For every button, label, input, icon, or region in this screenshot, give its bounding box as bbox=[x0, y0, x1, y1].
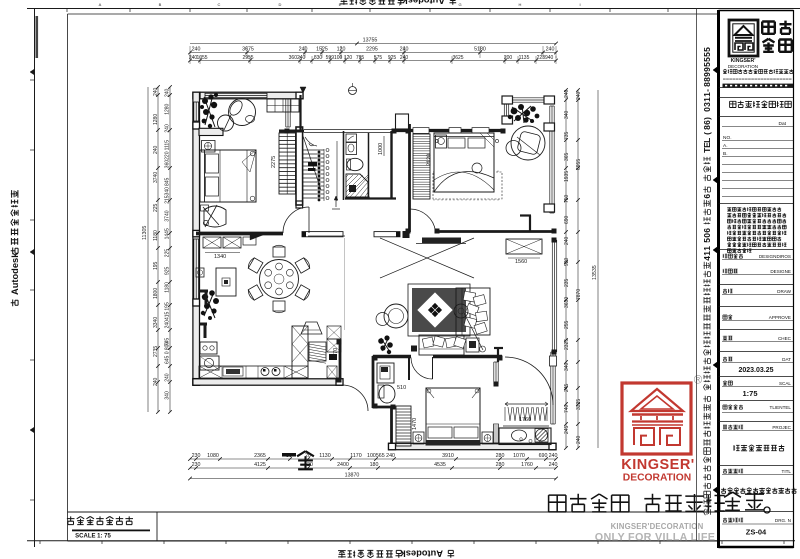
svg-text:CHEC: CHEC bbox=[778, 336, 792, 341]
svg-text:PROJEC: PROJEC bbox=[772, 425, 791, 430]
svg-text:599100: 599100 bbox=[326, 55, 343, 61]
svg-text:230: 230 bbox=[192, 462, 201, 468]
svg-text:4535: 4535 bbox=[434, 462, 446, 468]
svg-text:2325: 2325 bbox=[564, 339, 570, 350]
svg-text:®: ® bbox=[694, 375, 703, 387]
svg-text:240: 240 bbox=[153, 377, 159, 386]
svg-text:740: 740 bbox=[564, 404, 570, 413]
svg-text:2955: 2955 bbox=[242, 55, 253, 61]
svg-text:H: H bbox=[519, 2, 522, 7]
svg-text:240: 240 bbox=[400, 47, 409, 53]
svg-text:KINGSER': KINGSER' bbox=[621, 457, 695, 473]
svg-text:ZS-04: ZS-04 bbox=[746, 528, 767, 537]
svg-text:2295: 2295 bbox=[366, 47, 378, 53]
svg-text:A.: A. bbox=[723, 143, 728, 149]
svg-text:240: 240 bbox=[165, 88, 171, 97]
svg-text:2120: 2120 bbox=[427, 154, 433, 166]
svg-text:1280: 1280 bbox=[165, 103, 171, 114]
svg-text:3740: 3740 bbox=[165, 210, 171, 221]
svg-text:225: 225 bbox=[153, 203, 159, 212]
svg-text:1800: 1800 bbox=[153, 288, 159, 299]
svg-text:1135: 1135 bbox=[519, 55, 530, 61]
svg-text:1080: 1080 bbox=[207, 453, 219, 459]
svg-text:TLIENTEL: TLIENTEL bbox=[770, 405, 792, 410]
svg-text:245: 245 bbox=[564, 425, 570, 434]
svg-text:L: L bbox=[702, 138, 712, 143]
svg-text:1670: 1670 bbox=[333, 348, 339, 360]
svg-text:195: 195 bbox=[165, 302, 171, 311]
svg-text:120: 120 bbox=[337, 47, 346, 53]
svg-text:240: 240 bbox=[153, 145, 159, 154]
svg-text:Autodesk: Autodesk bbox=[400, 549, 443, 559]
svg-text:690: 690 bbox=[539, 453, 548, 459]
svg-text:DECORATION: DECORATION bbox=[728, 64, 758, 69]
svg-text:750: 750 bbox=[564, 194, 570, 203]
svg-text:360220: 360220 bbox=[165, 151, 171, 168]
svg-text:240: 240 bbox=[165, 373, 171, 382]
svg-text:1470: 1470 bbox=[412, 418, 418, 430]
svg-text:3630: 3630 bbox=[564, 297, 570, 308]
svg-text:240: 240 bbox=[576, 91, 582, 100]
svg-text:): ) bbox=[702, 117, 712, 120]
svg-text:1935: 1935 bbox=[564, 171, 570, 182]
svg-text:255: 255 bbox=[564, 320, 570, 329]
svg-text:1340: 1340 bbox=[214, 254, 226, 260]
svg-text:3340: 3340 bbox=[153, 317, 159, 328]
svg-text:5: 5 bbox=[702, 47, 712, 52]
svg-text:235: 235 bbox=[564, 278, 570, 287]
svg-text:DESIGNDIROS: DESIGNDIROS bbox=[759, 254, 791, 259]
svg-text:3625: 3625 bbox=[452, 55, 463, 61]
svg-text:13755: 13755 bbox=[363, 38, 378, 44]
svg-text:240: 240 bbox=[192, 47, 201, 53]
svg-text:340: 340 bbox=[564, 110, 570, 119]
svg-text:240: 240 bbox=[576, 435, 582, 444]
svg-text:-: - bbox=[702, 89, 712, 92]
svg-text:Autodesk: Autodesk bbox=[402, 0, 445, 6]
svg-text:830: 830 bbox=[314, 55, 323, 61]
svg-text:340: 340 bbox=[564, 362, 570, 371]
svg-text:DECORATION: DECORATION bbox=[623, 473, 691, 484]
svg-text:D: D bbox=[279, 2, 282, 7]
svg-text:280: 280 bbox=[496, 462, 505, 468]
svg-text:2023.03.25: 2023.03.25 bbox=[738, 367, 773, 374]
svg-text:SCALE 1: 75: SCALE 1: 75 bbox=[75, 534, 111, 540]
svg-text:180: 180 bbox=[370, 462, 379, 468]
svg-text:11305: 11305 bbox=[142, 226, 148, 240]
svg-text:510: 510 bbox=[397, 385, 406, 391]
svg-text:DRG. N: DRG. N bbox=[775, 518, 791, 523]
svg-text:(: ( bbox=[702, 132, 712, 135]
svg-text:1170: 1170 bbox=[350, 453, 361, 459]
svg-text:215340: 215340 bbox=[165, 187, 171, 204]
svg-text:2365: 2365 bbox=[254, 453, 266, 459]
svg-text:NO.: NO. bbox=[723, 135, 732, 141]
svg-text:245: 245 bbox=[564, 383, 570, 392]
svg-text:E: E bbox=[339, 2, 342, 7]
svg-text:G: G bbox=[458, 2, 461, 7]
svg-text:240: 240 bbox=[546, 47, 555, 53]
svg-text:925: 925 bbox=[388, 55, 397, 61]
svg-text:735: 735 bbox=[564, 131, 570, 140]
svg-text:1760: 1760 bbox=[519, 417, 531, 423]
svg-text:1180: 1180 bbox=[165, 282, 171, 293]
svg-text:1: 1 bbox=[702, 246, 712, 251]
svg-text:1130: 1130 bbox=[319, 453, 330, 459]
svg-text:5180: 5180 bbox=[474, 47, 486, 53]
svg-text:3740: 3740 bbox=[153, 172, 159, 183]
svg-text:DAT: DAT bbox=[782, 357, 791, 362]
svg-text:575: 575 bbox=[374, 55, 383, 61]
svg-text:223940: 223940 bbox=[537, 55, 554, 61]
svg-text:920: 920 bbox=[564, 257, 570, 266]
svg-text:1180: 1180 bbox=[153, 230, 159, 241]
svg-text:3325: 3325 bbox=[576, 399, 582, 410]
svg-text:I: I bbox=[579, 2, 580, 7]
svg-text:240415: 240415 bbox=[165, 311, 171, 328]
svg-text:360240: 360240 bbox=[289, 55, 306, 61]
svg-text:ONLY FOR VILLA LIFE: ONLY FOR VILLA LIFE bbox=[595, 532, 715, 544]
svg-text:365: 365 bbox=[564, 152, 570, 161]
svg-text:6955: 6955 bbox=[576, 159, 582, 170]
svg-text:240: 240 bbox=[564, 236, 570, 245]
svg-text:7870: 7870 bbox=[576, 289, 582, 300]
svg-text:240: 240 bbox=[549, 462, 558, 468]
svg-text:195: 195 bbox=[153, 261, 159, 270]
svg-text:KINGSER'DECORATION: KINGSER'DECORATION bbox=[611, 522, 704, 531]
svg-text:DESIGNE: DESIGNE bbox=[770, 269, 791, 274]
svg-text:1760: 1760 bbox=[521, 462, 533, 468]
svg-text:1525: 1525 bbox=[316, 47, 328, 53]
svg-text:1445: 1445 bbox=[165, 228, 171, 239]
svg-text:240: 240 bbox=[299, 47, 308, 53]
svg-text:240: 240 bbox=[549, 453, 558, 459]
svg-text:B.: B. bbox=[723, 151, 728, 157]
svg-text:2735: 2735 bbox=[153, 346, 159, 357]
svg-text:240: 240 bbox=[564, 89, 570, 98]
svg-text:C: C bbox=[218, 2, 221, 7]
svg-text:A: A bbox=[99, 2, 102, 7]
svg-text:925: 925 bbox=[165, 266, 171, 275]
svg-text:240: 240 bbox=[165, 124, 171, 133]
svg-text:SCAL: SCAL bbox=[779, 381, 791, 386]
svg-text:Autodesk: Autodesk bbox=[10, 252, 20, 295]
svg-text:230: 230 bbox=[192, 453, 201, 459]
svg-text:100565 240: 100565 240 bbox=[367, 453, 395, 459]
svg-text:DRAW: DRAW bbox=[777, 289, 792, 294]
svg-text:645 0 800: 645 0 800 bbox=[165, 342, 171, 364]
svg-text:2275: 2275 bbox=[271, 156, 277, 168]
svg-text:795: 795 bbox=[356, 55, 365, 61]
svg-text:1115: 1115 bbox=[165, 140, 171, 151]
svg-text:690: 690 bbox=[564, 215, 570, 224]
svg-text:TITL: TITL bbox=[782, 469, 792, 474]
svg-text:1070: 1070 bbox=[513, 453, 525, 459]
svg-text:120: 120 bbox=[344, 55, 353, 61]
svg-text:240: 240 bbox=[400, 55, 409, 61]
svg-text:1055: 1055 bbox=[196, 55, 207, 61]
svg-text:6: 6 bbox=[702, 194, 712, 199]
svg-text:280: 280 bbox=[496, 453, 505, 459]
svg-text:340: 340 bbox=[165, 391, 171, 400]
svg-text:200: 200 bbox=[504, 55, 513, 61]
svg-text:Dat: Dat bbox=[779, 121, 787, 127]
svg-text:APPROVE: APPROVE bbox=[769, 315, 791, 320]
svg-text:845: 845 bbox=[165, 177, 171, 186]
svg-text:1:75: 1:75 bbox=[742, 389, 757, 398]
svg-text:6: 6 bbox=[702, 228, 712, 233]
svg-text:240: 240 bbox=[153, 87, 159, 96]
svg-text:2400: 2400 bbox=[337, 462, 349, 468]
svg-text:13870: 13870 bbox=[345, 473, 360, 479]
svg-text:3675: 3675 bbox=[242, 47, 254, 53]
svg-text:1000: 1000 bbox=[378, 143, 384, 155]
svg-text:B: B bbox=[159, 2, 162, 7]
svg-text:1560: 1560 bbox=[515, 259, 527, 265]
svg-text:3910: 3910 bbox=[442, 453, 454, 459]
svg-text:1280: 1280 bbox=[153, 114, 159, 125]
svg-text:13535: 13535 bbox=[592, 265, 598, 280]
svg-text:4125: 4125 bbox=[254, 462, 266, 468]
svg-text:225: 225 bbox=[165, 249, 171, 258]
